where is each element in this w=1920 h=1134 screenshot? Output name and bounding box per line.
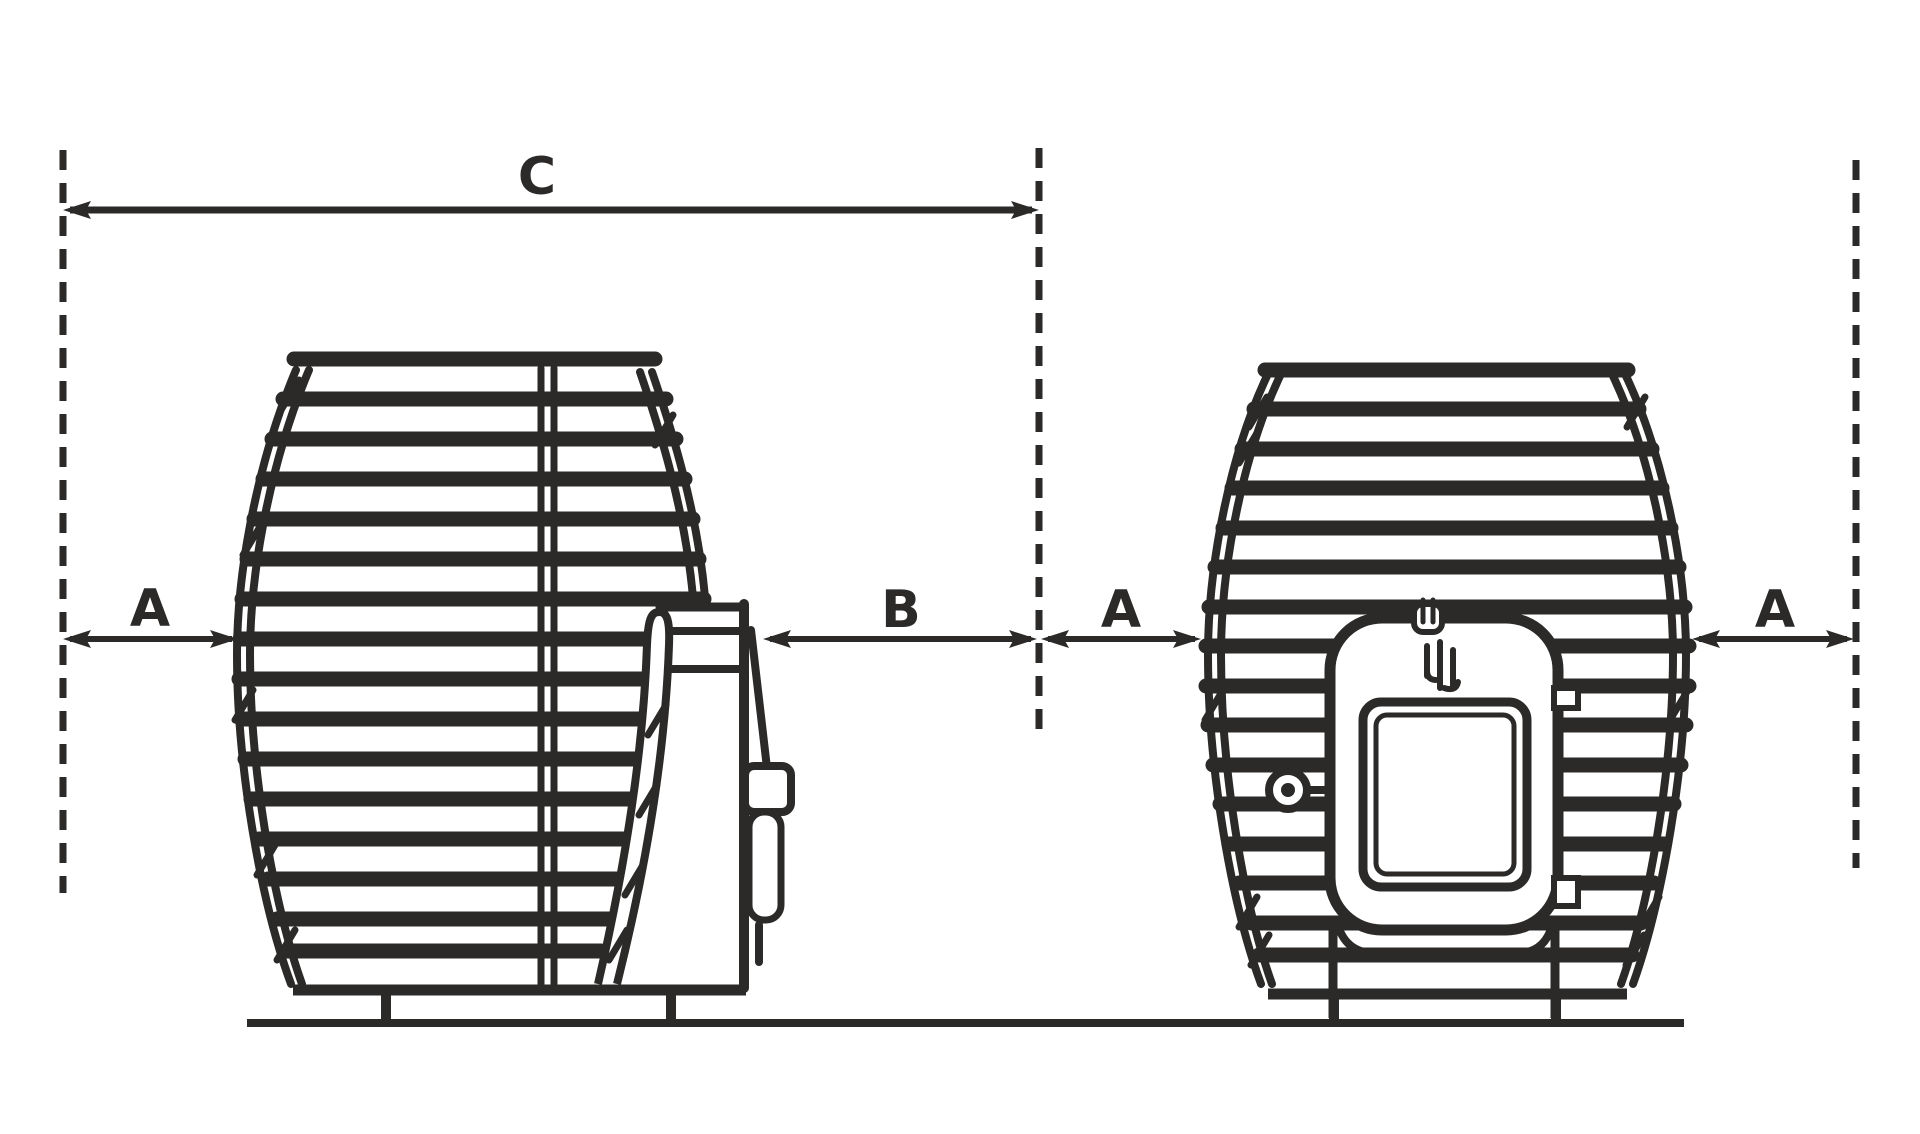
dimension-a-right: A xyxy=(1692,580,1854,648)
dimension-a-left: A xyxy=(63,579,238,648)
dimension-b: B xyxy=(763,580,1037,648)
dimension-diagram: C A B A A xyxy=(0,0,1920,1134)
dimension-a-left-label: A xyxy=(130,579,170,639)
heater-valve-box xyxy=(745,766,791,812)
dimension-a-middle: A xyxy=(1041,580,1201,648)
dimension-a-middle-label: A xyxy=(1101,580,1141,640)
dimension-c-label: C xyxy=(518,147,556,207)
dimension-b-label: B xyxy=(881,580,921,640)
right-tub-base-skid xyxy=(1268,994,1627,1020)
door-hinge-bottom xyxy=(1554,878,1578,906)
door-top-tab xyxy=(1414,600,1442,632)
left-tub xyxy=(235,359,791,1020)
heater-tube xyxy=(749,812,781,920)
dimension-c: C xyxy=(63,147,1039,219)
heater-pipe xyxy=(751,630,767,768)
right-tub xyxy=(1205,370,1689,1020)
door-hinge-top xyxy=(1554,688,1578,708)
left-tub-base-skid xyxy=(293,990,746,1020)
dimension-a-right-label: A xyxy=(1755,580,1795,640)
